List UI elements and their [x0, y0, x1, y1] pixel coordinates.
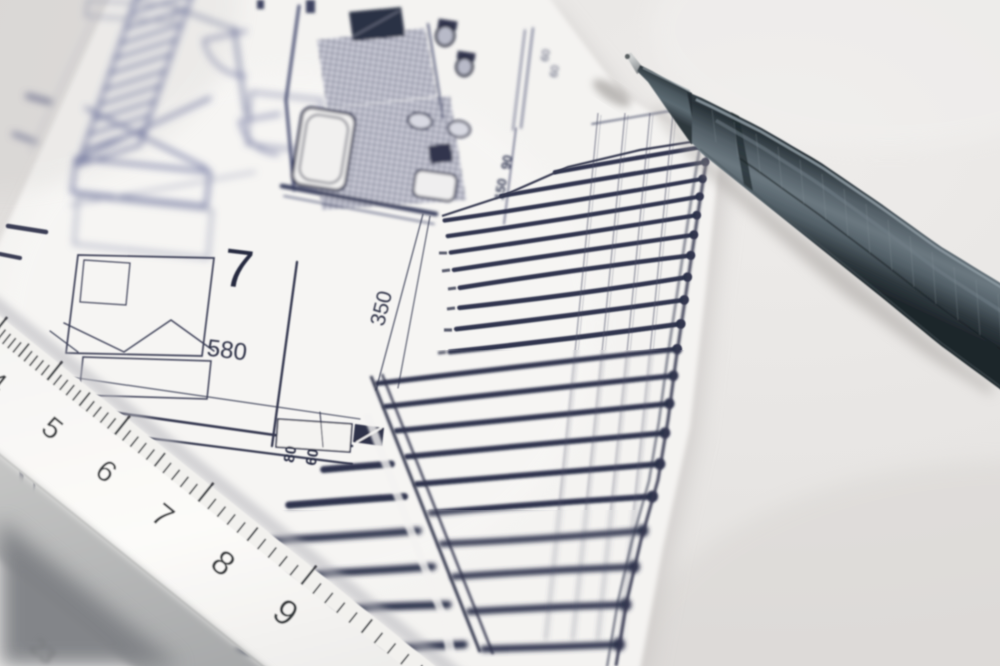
svg-text:90: 90	[498, 154, 515, 171]
svg-text:580: 580	[205, 335, 248, 367]
svg-text:60: 60	[548, 64, 562, 78]
svg-text:60: 60	[539, 48, 553, 62]
svg-text:60: 60	[303, 448, 323, 467]
svg-text:80: 80	[281, 445, 301, 464]
